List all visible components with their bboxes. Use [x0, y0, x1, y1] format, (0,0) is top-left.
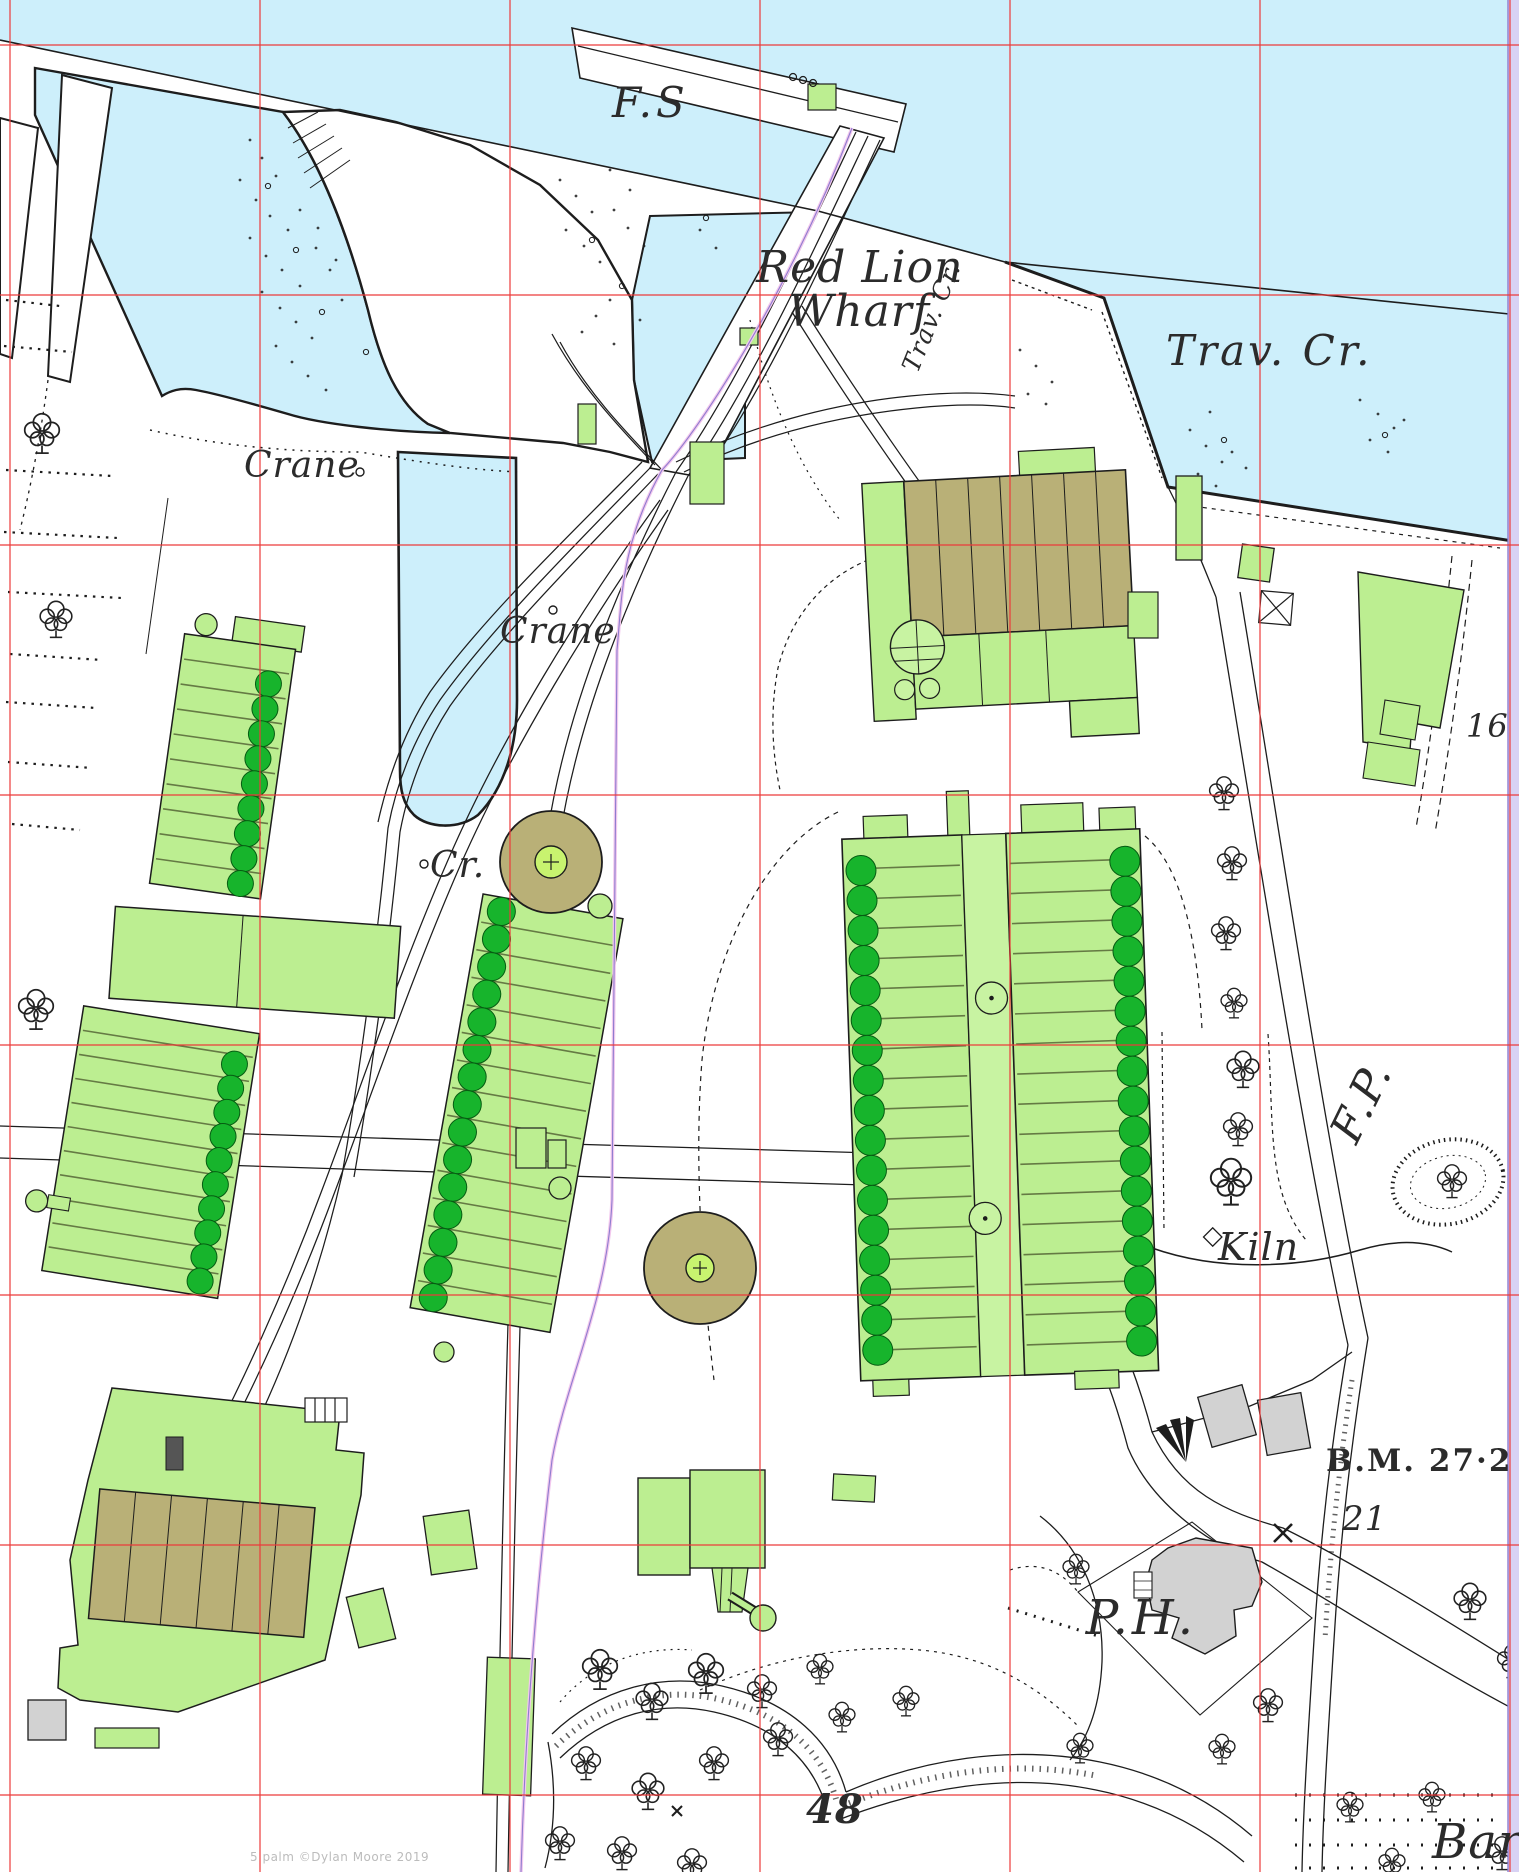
weighbridge — [166, 1437, 183, 1470]
building-green-sw — [95, 1728, 159, 1748]
tank-small — [194, 612, 219, 637]
glasshouse-frame-sq — [1259, 591, 1294, 626]
tank-small — [919, 678, 940, 699]
jetty-far-west — [0, 118, 38, 358]
building-grey-sw — [28, 1700, 66, 1740]
building-small — [1128, 592, 1158, 638]
loading-comb — [305, 1398, 347, 1422]
building-small — [832, 1474, 875, 1502]
label-fs: F.S — [612, 82, 689, 124]
glasshouse-main — [840, 785, 1159, 1397]
annex — [946, 791, 970, 838]
gas-holder-north — [500, 811, 602, 913]
annex — [1021, 803, 1084, 835]
label-bard: Bard — [1432, 1818, 1519, 1866]
tank-small — [434, 1342, 454, 1362]
label-parcel-16: 16 — [1466, 710, 1509, 742]
label-crane-upper: Crane — [244, 448, 360, 484]
boundary-cross-small — [672, 1806, 682, 1816]
tank-small — [549, 1177, 571, 1199]
label-cr: Cr. — [430, 848, 485, 884]
building-small — [808, 84, 836, 110]
building-grey — [1198, 1385, 1257, 1448]
south-east-wing — [1069, 698, 1139, 738]
tank-small — [24, 1188, 49, 1213]
glasshouse-nw — [149, 610, 304, 900]
hollow-hachured — [1384, 1129, 1511, 1234]
building-small — [548, 1140, 566, 1168]
boundary-cross — [1274, 1524, 1292, 1542]
map-viewport: F.S Red Lion Wharf Trav. Cr. Trav. Cr. C… — [0, 0, 1519, 1872]
glasshouse-central — [410, 894, 623, 1332]
jetty-mud-dash — [20, 380, 48, 530]
building-small — [690, 442, 724, 504]
label-trav-cr-large: Trav. Cr. — [1166, 330, 1373, 372]
label-benchmark: B.M. 27·2 — [1326, 1446, 1512, 1477]
label-public-house: P.H. — [1086, 1594, 1197, 1642]
crane-circle — [420, 860, 428, 868]
tank-stem — [47, 1195, 71, 1211]
works-sw — [58, 1388, 364, 1712]
building-ne-small — [1176, 476, 1202, 560]
hopper-building — [638, 1470, 776, 1631]
building-w-annex — [109, 906, 401, 1018]
factory-complex — [861, 446, 1140, 747]
fence-sw-of-basin — [146, 498, 168, 654]
label-kiln: Kiln — [1218, 1228, 1299, 1266]
annex — [873, 1379, 910, 1396]
label-crane-lower: Crane — [500, 614, 616, 650]
building-small — [516, 1128, 546, 1168]
building-ne-small — [1238, 544, 1274, 582]
building-small — [578, 404, 596, 444]
annex — [1075, 1370, 1120, 1390]
label-parcel-48: 48 — [806, 1790, 864, 1830]
watermark: 5 palm ©Dylan Moore 2019 — [250, 1850, 429, 1864]
hollow-inner — [1405, 1149, 1490, 1216]
tank-small — [588, 894, 612, 918]
building-small — [423, 1510, 477, 1575]
building-small — [346, 1588, 395, 1648]
south-wing — [912, 626, 1137, 710]
label-parcel-21: 21 — [1342, 1502, 1387, 1536]
kiln-block — [904, 470, 1134, 637]
label-wharf: Wharf — [788, 290, 930, 334]
benchmark-arrow — [1156, 1416, 1194, 1462]
gas-holder-south — [644, 1212, 756, 1324]
building-grey — [1257, 1393, 1310, 1456]
conveyor-terminal — [750, 1605, 776, 1631]
glasshouse-w — [15, 1002, 259, 1299]
tank-small — [894, 679, 915, 700]
